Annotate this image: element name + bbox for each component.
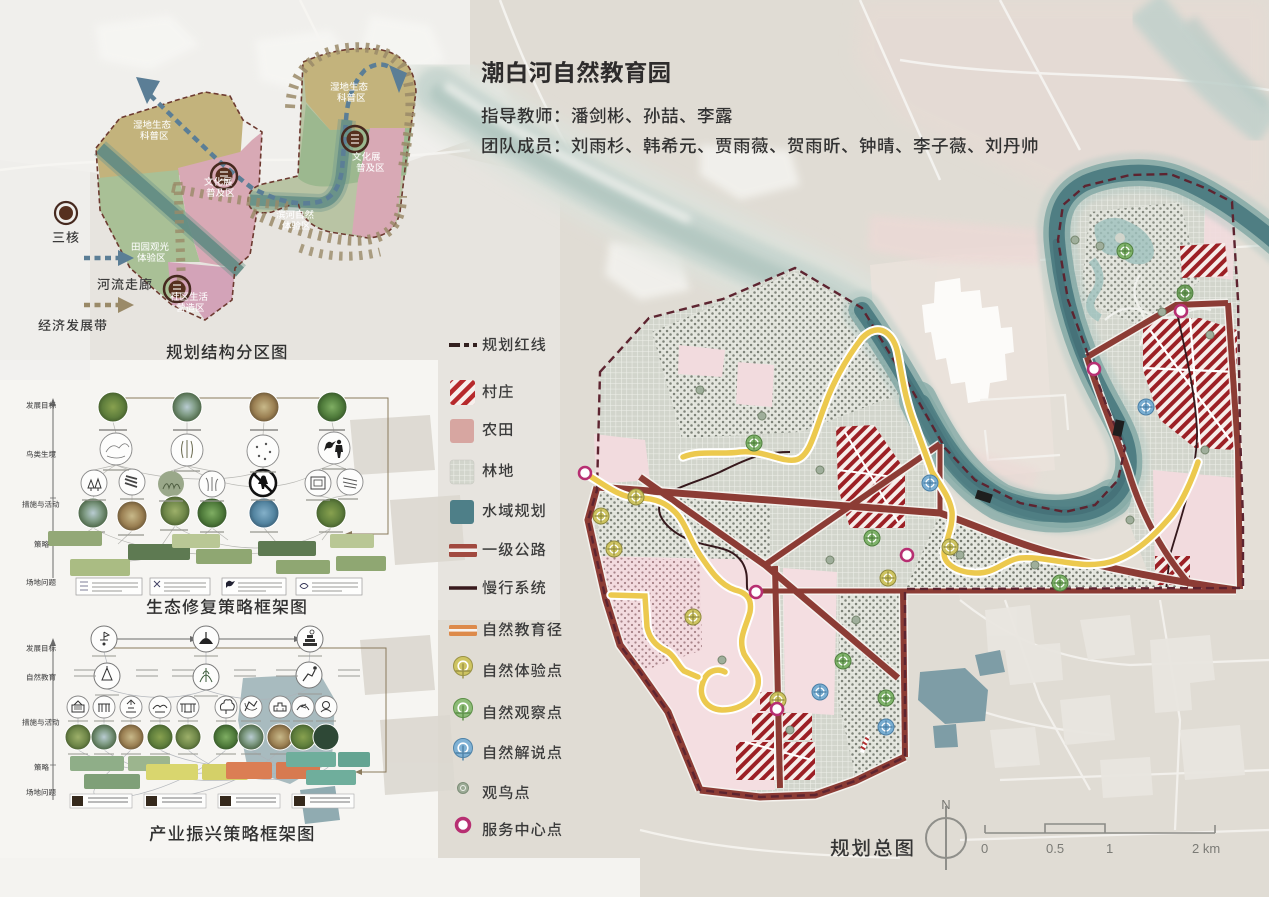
svg-text:2 km: 2 km <box>1192 841 1220 856</box>
svg-text:N: N <box>941 797 950 812</box>
svg-text:0: 0 <box>981 841 988 856</box>
svg-text:0.5: 0.5 <box>1046 841 1064 856</box>
svg-text:1: 1 <box>1106 841 1113 856</box>
